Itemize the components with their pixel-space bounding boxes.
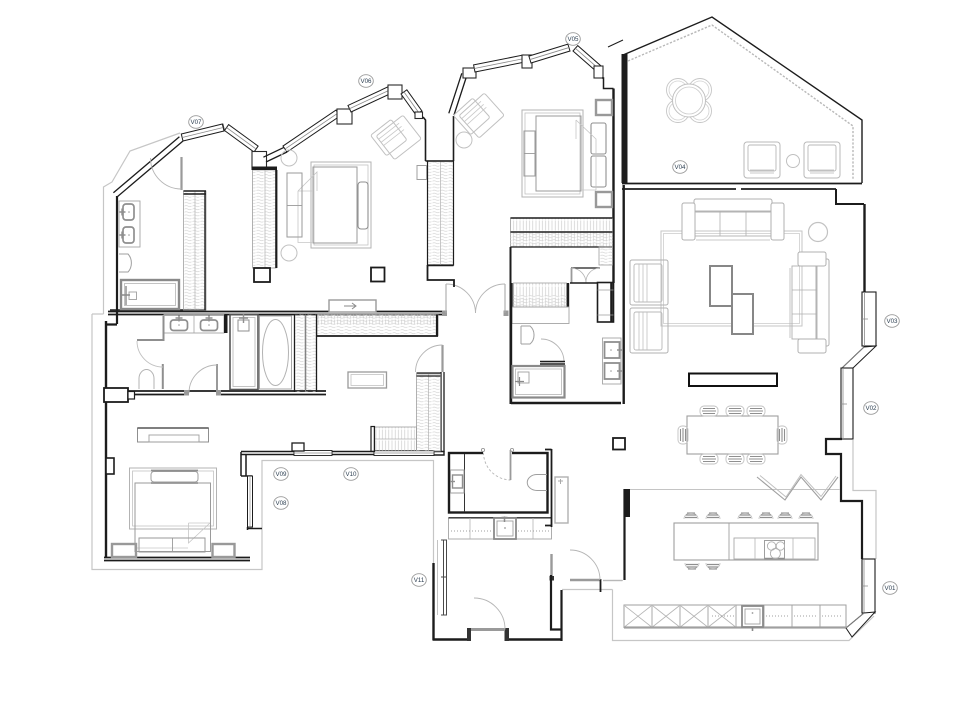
svg-text:V06: V06 [360,78,372,85]
svg-text:V07: V07 [190,119,202,126]
svg-text:V08: V08 [275,500,287,507]
svg-text:V10: V10 [345,471,357,478]
svg-text:V04: V04 [674,164,686,171]
svg-text:V03: V03 [886,318,898,325]
svg-text:V02: V02 [865,405,877,412]
svg-text:V01: V01 [884,585,896,592]
svg-text:V09: V09 [275,471,287,478]
svg-text:V11: V11 [414,577,425,584]
svg-text:V05: V05 [567,36,579,43]
